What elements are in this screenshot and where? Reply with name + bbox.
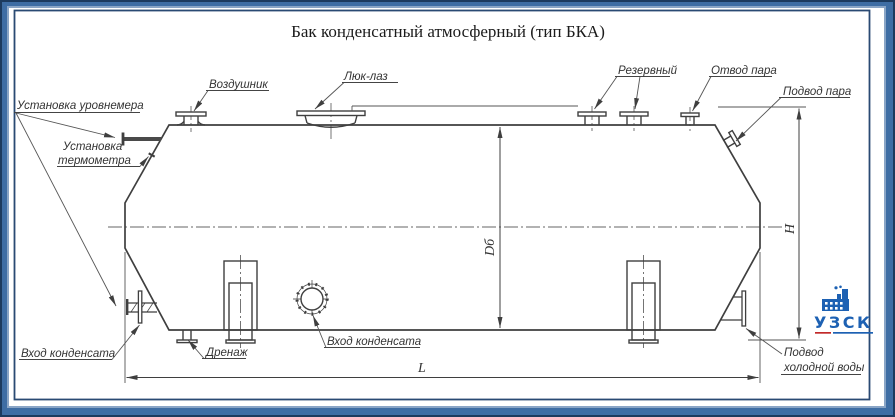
label-cold-water-1: Подвод: [784, 347, 824, 359]
dimension-height-label: H: [783, 223, 798, 235]
label-steam-outlet: Отвод пара: [711, 65, 777, 77]
logo-name: УЗСК: [814, 313, 873, 332]
front-flange: [297, 284, 327, 314]
label-condensate-inlet-left: Вход конденсата: [21, 348, 115, 360]
label-manhole: Люк-лаз: [343, 71, 388, 83]
dimension-length-label: L: [417, 361, 426, 376]
label-air-vent: Воздушник: [209, 79, 268, 91]
label-reserve: Резервный: [618, 65, 678, 77]
label-thermometer-1: Установка: [62, 141, 122, 153]
label-steam-inlet: Подвод пара: [783, 86, 851, 98]
level-gauge-pipe: [124, 137, 161, 141]
label-drain: Дренаж: [204, 347, 249, 359]
drawing-page: Бак конденсатный атмосферный (тип БКА): [0, 0, 895, 417]
label-condensate-inlet-front: Вход конденсата: [327, 336, 421, 348]
tank-drawing: Бак конденсатный атмосферный (тип БКА): [0, 0, 895, 417]
logo-tagline-rule: [815, 332, 873, 334]
dimension-diameter-label: Dб: [483, 238, 498, 257]
label-level-gauge: Установка уровнемера: [16, 100, 144, 112]
drawing-title: Бак конденсатный атмосферный (тип БКА): [291, 22, 605, 41]
label-cold-water-2: холодной воды: [783, 362, 865, 374]
label-thermometer-2: термометра: [58, 155, 131, 167]
